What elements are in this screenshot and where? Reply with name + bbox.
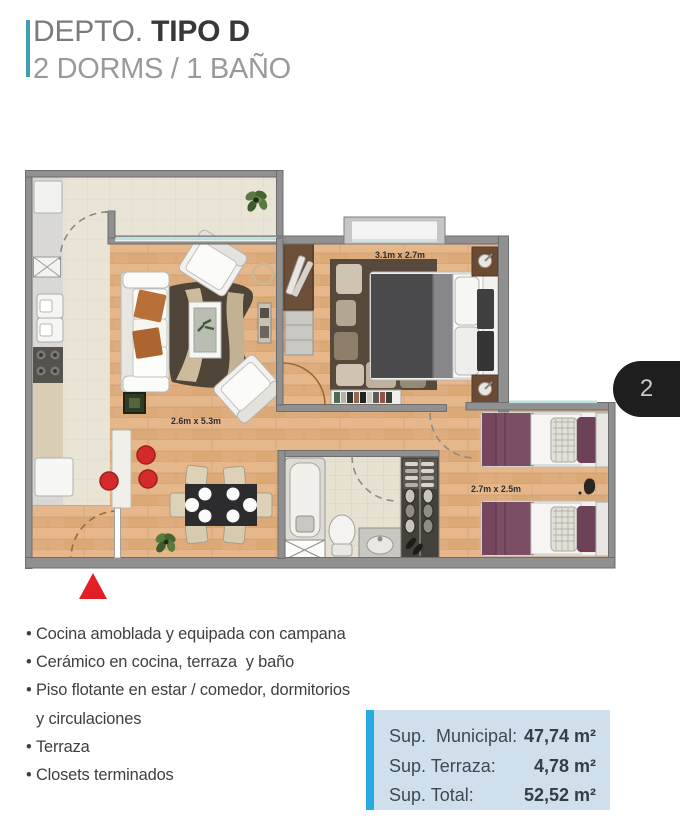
svg-text:2.7m x 2.5m: 2.7m x 2.5m — [471, 484, 521, 494]
svg-text:2.6m x 5.3m: 2.6m x 5.3m — [171, 416, 221, 426]
svg-text:3.1m x 2.7m: 3.1m x 2.7m — [375, 250, 425, 260]
